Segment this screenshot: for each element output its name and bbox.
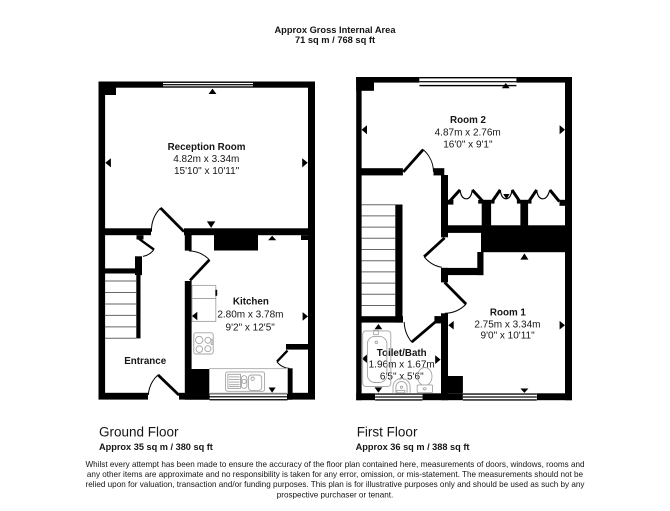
svg-text:Approx 36 sq m / 388 sq ft: Approx 36 sq m / 388 sq ft [356, 442, 470, 452]
svg-text:15'10" x 10'11": 15'10" x 10'11" [174, 166, 240, 177]
svg-text:2.75m x 3.34m: 2.75m x 3.34m [474, 319, 540, 330]
svg-text:Room 1: Room 1 [490, 308, 526, 319]
svg-text:71 sq m / 768 sq ft: 71 sq m / 768 sq ft [295, 35, 375, 45]
svg-text:2.80m x 3.78m: 2.80m x 3.78m [217, 310, 283, 321]
svg-text:4.87m x 2.76m: 4.87m x 2.76m [435, 127, 501, 138]
svg-text:prospective purchaser or tenan: prospective purchaser or tenant. [277, 490, 394, 499]
svg-text:relied upon for valuation, tra: relied upon for valuation, transaction a… [86, 480, 586, 489]
svg-text:9'0" x 10'11": 9'0" x 10'11" [481, 331, 536, 342]
svg-text:4.82m x 3.34m: 4.82m x 3.34m [173, 154, 239, 165]
svg-text:Ground Floor: Ground Floor [99, 424, 179, 439]
svg-text:9'2" x 12'5": 9'2" x 12'5" [226, 322, 276, 333]
svg-text:Whilst every attempt has been: Whilst every attempt has been made to en… [85, 460, 584, 469]
svg-text:Toilet/Bath: Toilet/Bath [377, 348, 427, 359]
svg-text:Approx 35 sq m / 380 sq ft: Approx 35 sq m / 380 sq ft [99, 442, 213, 452]
svg-text:Room 2: Room 2 [450, 115, 486, 126]
svg-text:any other items are approximat: any other items are approximate and no r… [87, 470, 584, 479]
svg-text:Reception Room: Reception Room [168, 142, 246, 153]
svg-text:First Floor: First Floor [357, 424, 418, 439]
svg-text:1.96m x 1.67m: 1.96m x 1.67m [369, 360, 435, 371]
svg-text:Entrance: Entrance [124, 356, 166, 367]
svg-text:Kitchen: Kitchen [233, 297, 269, 308]
svg-text:Approx Gross Internal Area: Approx Gross Internal Area [274, 25, 396, 35]
svg-text:16'0" x 9'1": 16'0" x 9'1" [443, 140, 493, 151]
